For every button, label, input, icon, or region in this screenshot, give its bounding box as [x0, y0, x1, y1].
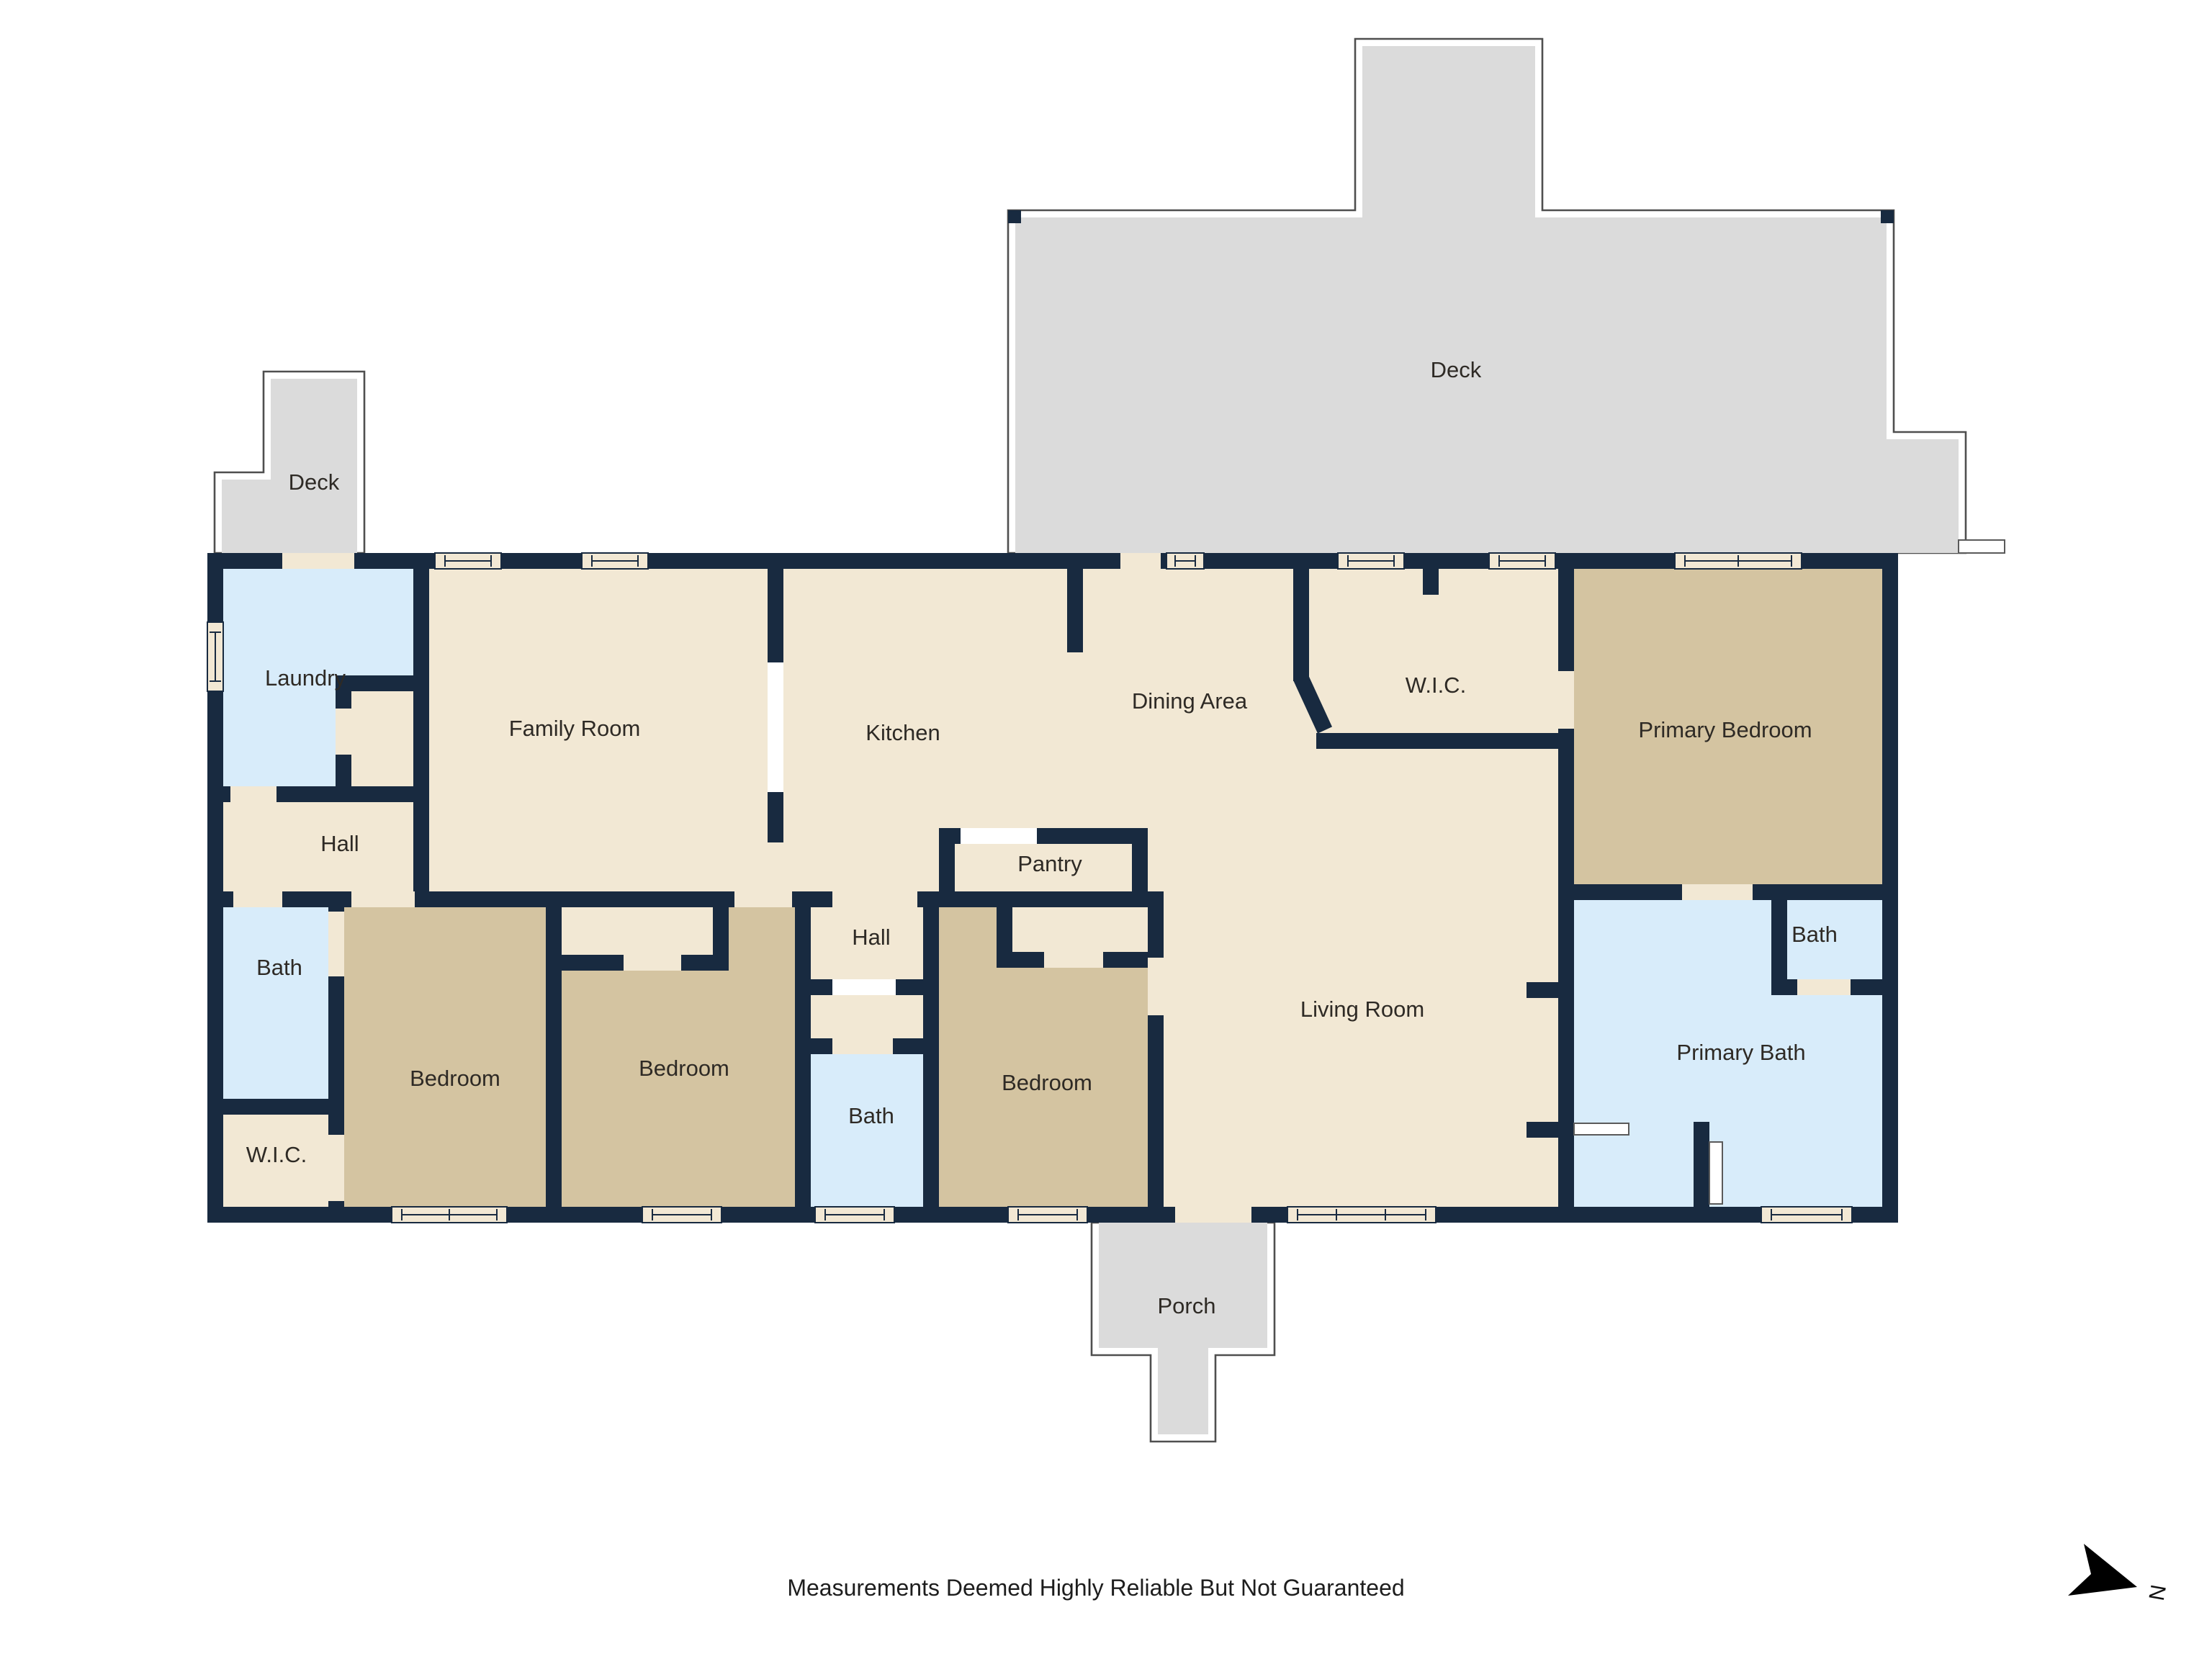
- label-pantry: Pantry: [1017, 851, 1082, 876]
- window-family-2: [582, 553, 648, 569]
- window-family-1: [435, 553, 501, 569]
- label-dining-area: Dining Area: [1132, 688, 1248, 714]
- porch-floor: [1099, 1223, 1267, 1434]
- label-bath-right: Bath: [1791, 922, 1838, 947]
- deck-small-floor: [222, 379, 357, 553]
- door-hall-middle-entry: [832, 891, 917, 907]
- label-kitchen: Kitchen: [866, 720, 940, 745]
- window-bedroom-left: [392, 1207, 507, 1223]
- window-laundry: [207, 622, 223, 691]
- label-bedroom-right: Bedroom: [1002, 1070, 1092, 1095]
- door-wic-lower: [328, 1135, 344, 1201]
- door-laundry-closet: [336, 709, 351, 755]
- window-bedroom-middle: [642, 1207, 721, 1223]
- primary-bath-counter: [1574, 1123, 1629, 1135]
- room-bedroom-left: [344, 907, 546, 1207]
- floor-plan-canvas: Deck Deck Laundry Family Room Kitchen Di…: [0, 0, 2212, 1659]
- label-bath-middle: Bath: [848, 1103, 894, 1128]
- window-living-room: [1287, 1207, 1436, 1223]
- door-hall-middle: [832, 979, 896, 995]
- opening-family-kitchen: [768, 662, 783, 792]
- room-bath-middle: [811, 1054, 923, 1207]
- opening-family-lower: [768, 842, 783, 891]
- door-bath-right: [1797, 979, 1851, 995]
- label-bath-left: Bath: [256, 955, 302, 980]
- window-primary-bath: [1761, 1207, 1852, 1223]
- door-deck-small: [282, 553, 354, 569]
- label-hall-left: Hall: [320, 831, 359, 856]
- deck-large: [1008, 39, 2005, 553]
- door-closet-right: [1044, 952, 1103, 968]
- deck-post-right: [1881, 210, 1894, 223]
- window-dining-2: [1489, 553, 1555, 569]
- deck-large-floor: [1015, 46, 1959, 553]
- closet-bedroom-middle: [562, 907, 713, 955]
- label-porch: Porch: [1158, 1293, 1216, 1318]
- label-deck-large: Deck: [1431, 357, 1482, 382]
- door-bath-left: [233, 891, 282, 907]
- door-kitchen-deck: [1120, 553, 1161, 569]
- window-bath-middle: [815, 1207, 894, 1223]
- north-arrow-icon: [2068, 1544, 2137, 1596]
- label-family-room: Family Room: [509, 716, 641, 741]
- porch: [1092, 1223, 1274, 1442]
- closet-bedroom-right: [1012, 907, 1148, 952]
- disclaimer-text: Measurements Deemed Highly Reliable But …: [787, 1575, 1404, 1601]
- window-primary-bedroom: [1675, 553, 1802, 569]
- window-kitchen-1: [1166, 553, 1204, 569]
- deck-small: [215, 372, 364, 553]
- label-primary-bath: Primary Bath: [1676, 1040, 1805, 1065]
- label-hall-middle: Hall: [852, 925, 890, 950]
- label-bedroom-left: Bedroom: [410, 1066, 500, 1091]
- window-dining-1: [1338, 553, 1404, 569]
- deck-post-left: [1008, 210, 1021, 223]
- deck-step-rail: [1959, 540, 2005, 553]
- house: [207, 553, 1898, 1223]
- door-primary-bath: [1682, 884, 1753, 900]
- window-bedroom-right: [1008, 1207, 1087, 1223]
- room-bath-left: [223, 907, 328, 1099]
- primary-bath-door-leaf: [1709, 1142, 1722, 1204]
- label-wic-upper: W.I.C.: [1406, 673, 1466, 698]
- label-living-room: Living Room: [1300, 997, 1424, 1022]
- north-label: N: [2144, 1583, 2170, 1602]
- door-bedroom-left-side: [328, 912, 344, 976]
- compass: N: [2068, 1544, 2170, 1602]
- door-bedroom-right: [1148, 958, 1164, 1015]
- door-bath-middle: [832, 1038, 893, 1054]
- label-bedroom-middle: Bedroom: [639, 1056, 729, 1081]
- label-laundry: Laundry: [265, 665, 346, 691]
- label-wic-lower: W.I.C.: [246, 1142, 307, 1167]
- door-pantry: [961, 828, 1037, 844]
- closet-laundry: [351, 691, 413, 786]
- label-primary-bedroom: Primary Bedroom: [1638, 717, 1812, 742]
- door-bedroom-left: [351, 891, 415, 907]
- door-porch: [1175, 1207, 1251, 1223]
- door-laundry-hall: [230, 786, 276, 802]
- door-closet-middle: [624, 955, 681, 971]
- door-wic-primary: [1558, 671, 1574, 729]
- door-bedroom-middle: [734, 891, 792, 907]
- label-deck-small: Deck: [289, 469, 340, 495]
